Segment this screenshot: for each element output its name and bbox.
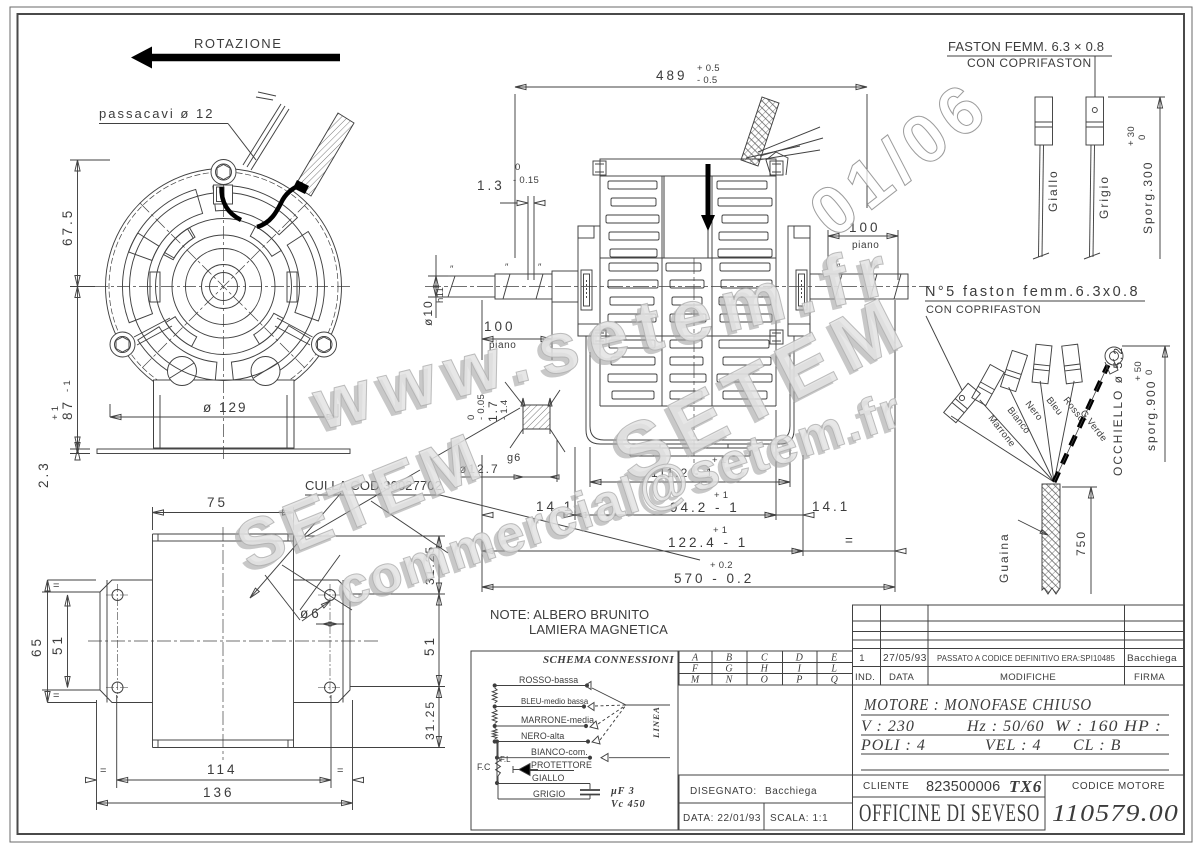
svg-text:ROTAZIONE: ROTAZIONE	[194, 36, 282, 51]
svg-text:ø10: ø10	[421, 299, 435, 326]
svg-text:0: 0	[1137, 134, 1148, 140]
svg-text:Sporg.300: Sporg.300	[1141, 161, 1155, 234]
svg-text:passacavi ø 12: passacavi ø 12	[99, 106, 214, 121]
svg-text:+ 0.2: + 0.2	[710, 560, 733, 571]
svg-text:M: M	[690, 675, 700, 686]
svg-text:FASTON FEMM. 6.3 × 0.8: FASTON FEMM. 6.3 × 0.8	[948, 39, 1104, 54]
svg-text:DATA: 22/01/93: DATA: 22/01/93	[683, 813, 761, 824]
svg-text:VEL : 4: VEL : 4	[985, 737, 1041, 754]
svg-text:14.1: 14.1	[812, 499, 850, 514]
svg-text:+ 30: + 30	[1126, 126, 1137, 146]
svg-text:DISEGNATO:: DISEGNATO:	[690, 786, 757, 797]
svg-text:=: =	[845, 533, 856, 548]
svg-text:P: P	[795, 675, 803, 686]
svg-text:MARRONE-media: MARRONE-media	[521, 715, 594, 725]
svg-text:LAMIERA MAGNETICA: LAMIERA MAGNETICA	[529, 622, 668, 637]
svg-text:MODIFICHE: MODIFICHE	[1000, 672, 1056, 683]
svg-text:1: 1	[859, 653, 865, 664]
svg-text:51: 51	[50, 634, 65, 655]
svg-text:Nero: Nero	[1023, 399, 1045, 423]
svg-text:GIALLO: GIALLO	[532, 773, 564, 783]
svg-text:″: ″	[538, 262, 542, 273]
svg-text:sporg.900: sporg.900	[1144, 380, 1158, 451]
svg-text:Giallo: Giallo	[1046, 169, 1060, 212]
svg-text:ø 129: ø 129	[203, 400, 248, 415]
svg-text:C: C	[761, 653, 769, 664]
svg-text:G: G	[725, 664, 733, 675]
svg-text:0: 0	[515, 162, 521, 173]
svg-text:+ 50: + 50	[1133, 361, 1144, 381]
svg-text:N: N	[725, 675, 734, 686]
svg-text:01/06: 01/06	[795, 66, 1003, 252]
svg-text:750: 750	[1074, 530, 1088, 556]
svg-text:GRIGIO: GRIGIO	[533, 789, 565, 799]
svg-text:- 0.15: - 0.15	[513, 175, 539, 186]
svg-text:Hz : 50/60: Hz : 50/60	[966, 718, 1045, 735]
svg-text:67.5: 67.5	[60, 208, 75, 246]
svg-text:N°5 faston femm.6.3x0.8: N°5 faston femm.6.3x0.8	[925, 284, 1140, 300]
svg-text:51: 51	[422, 635, 437, 656]
svg-text:75: 75	[207, 495, 228, 510]
svg-text:LINEA: LINEA	[651, 706, 661, 739]
svg-text:OFFICINE DI SEVESO: OFFICINE DI SEVESO	[859, 800, 1040, 827]
svg-text:D: D	[795, 653, 804, 664]
svg-text:Grigio: Grigio	[1097, 175, 1111, 219]
svg-text:=: =	[53, 580, 60, 592]
svg-text:- 0.5: - 0.5	[697, 75, 718, 86]
svg-text:+ 0.5: + 0.5	[697, 63, 720, 74]
svg-text:114: 114	[207, 762, 238, 777]
svg-text:65: 65	[29, 636, 44, 657]
svg-text:Bacchiega: Bacchiega	[765, 786, 817, 797]
svg-text:I: I	[797, 664, 802, 675]
svg-text:PASSATO A CODICE DEFINITIVO ER: PASSATO A CODICE DEFINITIVO ERA:SPI10485	[937, 654, 1115, 663]
svg-text:Guaina: Guaina	[997, 532, 1011, 583]
svg-text:IND.: IND.	[855, 672, 875, 683]
svg-text:W : 160 HP :: W : 160 HP :	[1055, 718, 1162, 735]
svg-text:B: B	[726, 653, 733, 664]
svg-text:F.L: F.L	[500, 755, 511, 764]
svg-text:=: =	[337, 765, 344, 777]
svg-text:DATA: DATA	[889, 672, 914, 683]
svg-text:Bacchiega: Bacchiega	[1127, 653, 1177, 664]
svg-text:Q: Q	[831, 675, 839, 686]
svg-text:=: =	[53, 690, 60, 702]
svg-text:NOTE: ALBERO BRUNITO: NOTE: ALBERO BRUNITO	[490, 607, 649, 622]
svg-text:Bleu: Bleu	[1044, 395, 1065, 418]
svg-text:CON COPRIFASTON: CON COPRIFASTON	[926, 304, 1041, 316]
svg-text:NERO-alta: NERO-alta	[521, 731, 564, 741]
svg-text:µF 3: µF 3	[610, 786, 635, 797]
svg-text:F: F	[691, 664, 699, 675]
svg-text:PROTETTORE: PROTETTORE	[531, 760, 592, 770]
svg-text:OCCHIELLO ø 5.2: OCCHIELLO ø 5.2	[1111, 346, 1125, 476]
svg-text:0: 0	[1144, 369, 1155, 375]
svg-text:ROSSO-bassa: ROSSO-bassa	[519, 675, 578, 685]
svg-text:TX6: TX6	[1009, 777, 1042, 796]
svg-text:87: 87	[60, 399, 75, 420]
svg-text:1.3: 1.3	[477, 178, 505, 193]
svg-text:823500006: 823500006	[926, 779, 1000, 795]
svg-text:″: ″	[450, 264, 454, 275]
svg-text:489: 489	[656, 68, 688, 83]
svg-text:H: H	[760, 664, 769, 675]
svg-text:V : 230: V : 230	[861, 718, 915, 735]
svg-text:CL : B: CL : B	[1073, 737, 1121, 754]
svg-text:CLIENTE: CLIENTE	[863, 781, 909, 792]
svg-text:110579.00: 110579.00	[1052, 801, 1179, 827]
svg-text:ø6: ø6	[300, 606, 322, 621]
svg-text:A: A	[691, 653, 699, 664]
svg-text:31.25: 31.25	[423, 700, 437, 740]
svg-text:27/05/93: 27/05/93	[883, 653, 927, 664]
svg-text:CON COPRIFASTON: CON COPRIFASTON	[967, 56, 1092, 70]
svg-text:CODICE MOTORE: CODICE MOTORE	[1072, 781, 1165, 792]
svg-text:POLI : 4: POLI : 4	[860, 737, 926, 754]
svg-text:MOTORE : MONOFASE CHIUSO: MOTORE : MONOFASE CHIUSO	[863, 695, 1092, 714]
svg-text:570 - 0.2: 570 - 0.2	[674, 571, 754, 586]
svg-text:″: ″	[505, 262, 509, 273]
svg-text:L: L	[830, 664, 838, 675]
svg-text:122.4 - 1: 122.4 - 1	[668, 535, 748, 550]
svg-text:SCALA: 1:1: SCALA: 1:1	[770, 813, 828, 824]
svg-text:+ 1: + 1	[50, 406, 61, 420]
svg-text:SCHEMA CONNESSIONI: SCHEMA CONNESSIONI	[543, 654, 674, 666]
svg-text:Vc 450: Vc 450	[611, 799, 646, 810]
svg-text:g6: g6	[507, 452, 521, 464]
svg-text:BIANCO-com.: BIANCO-com.	[531, 747, 588, 757]
svg-text:2.3: 2.3	[36, 460, 51, 488]
svg-text:F.C: F.C	[477, 762, 491, 772]
svg-text:=: =	[100, 765, 107, 777]
svg-text:BLEU-medio bassa: BLEU-medio bassa	[521, 697, 589, 706]
svg-text:FIRMA: FIRMA	[1134, 672, 1165, 683]
svg-text:- 1: - 1	[62, 380, 73, 392]
svg-text:E: E	[830, 653, 838, 664]
svg-text:O: O	[761, 675, 769, 686]
svg-text:136: 136	[203, 785, 235, 800]
